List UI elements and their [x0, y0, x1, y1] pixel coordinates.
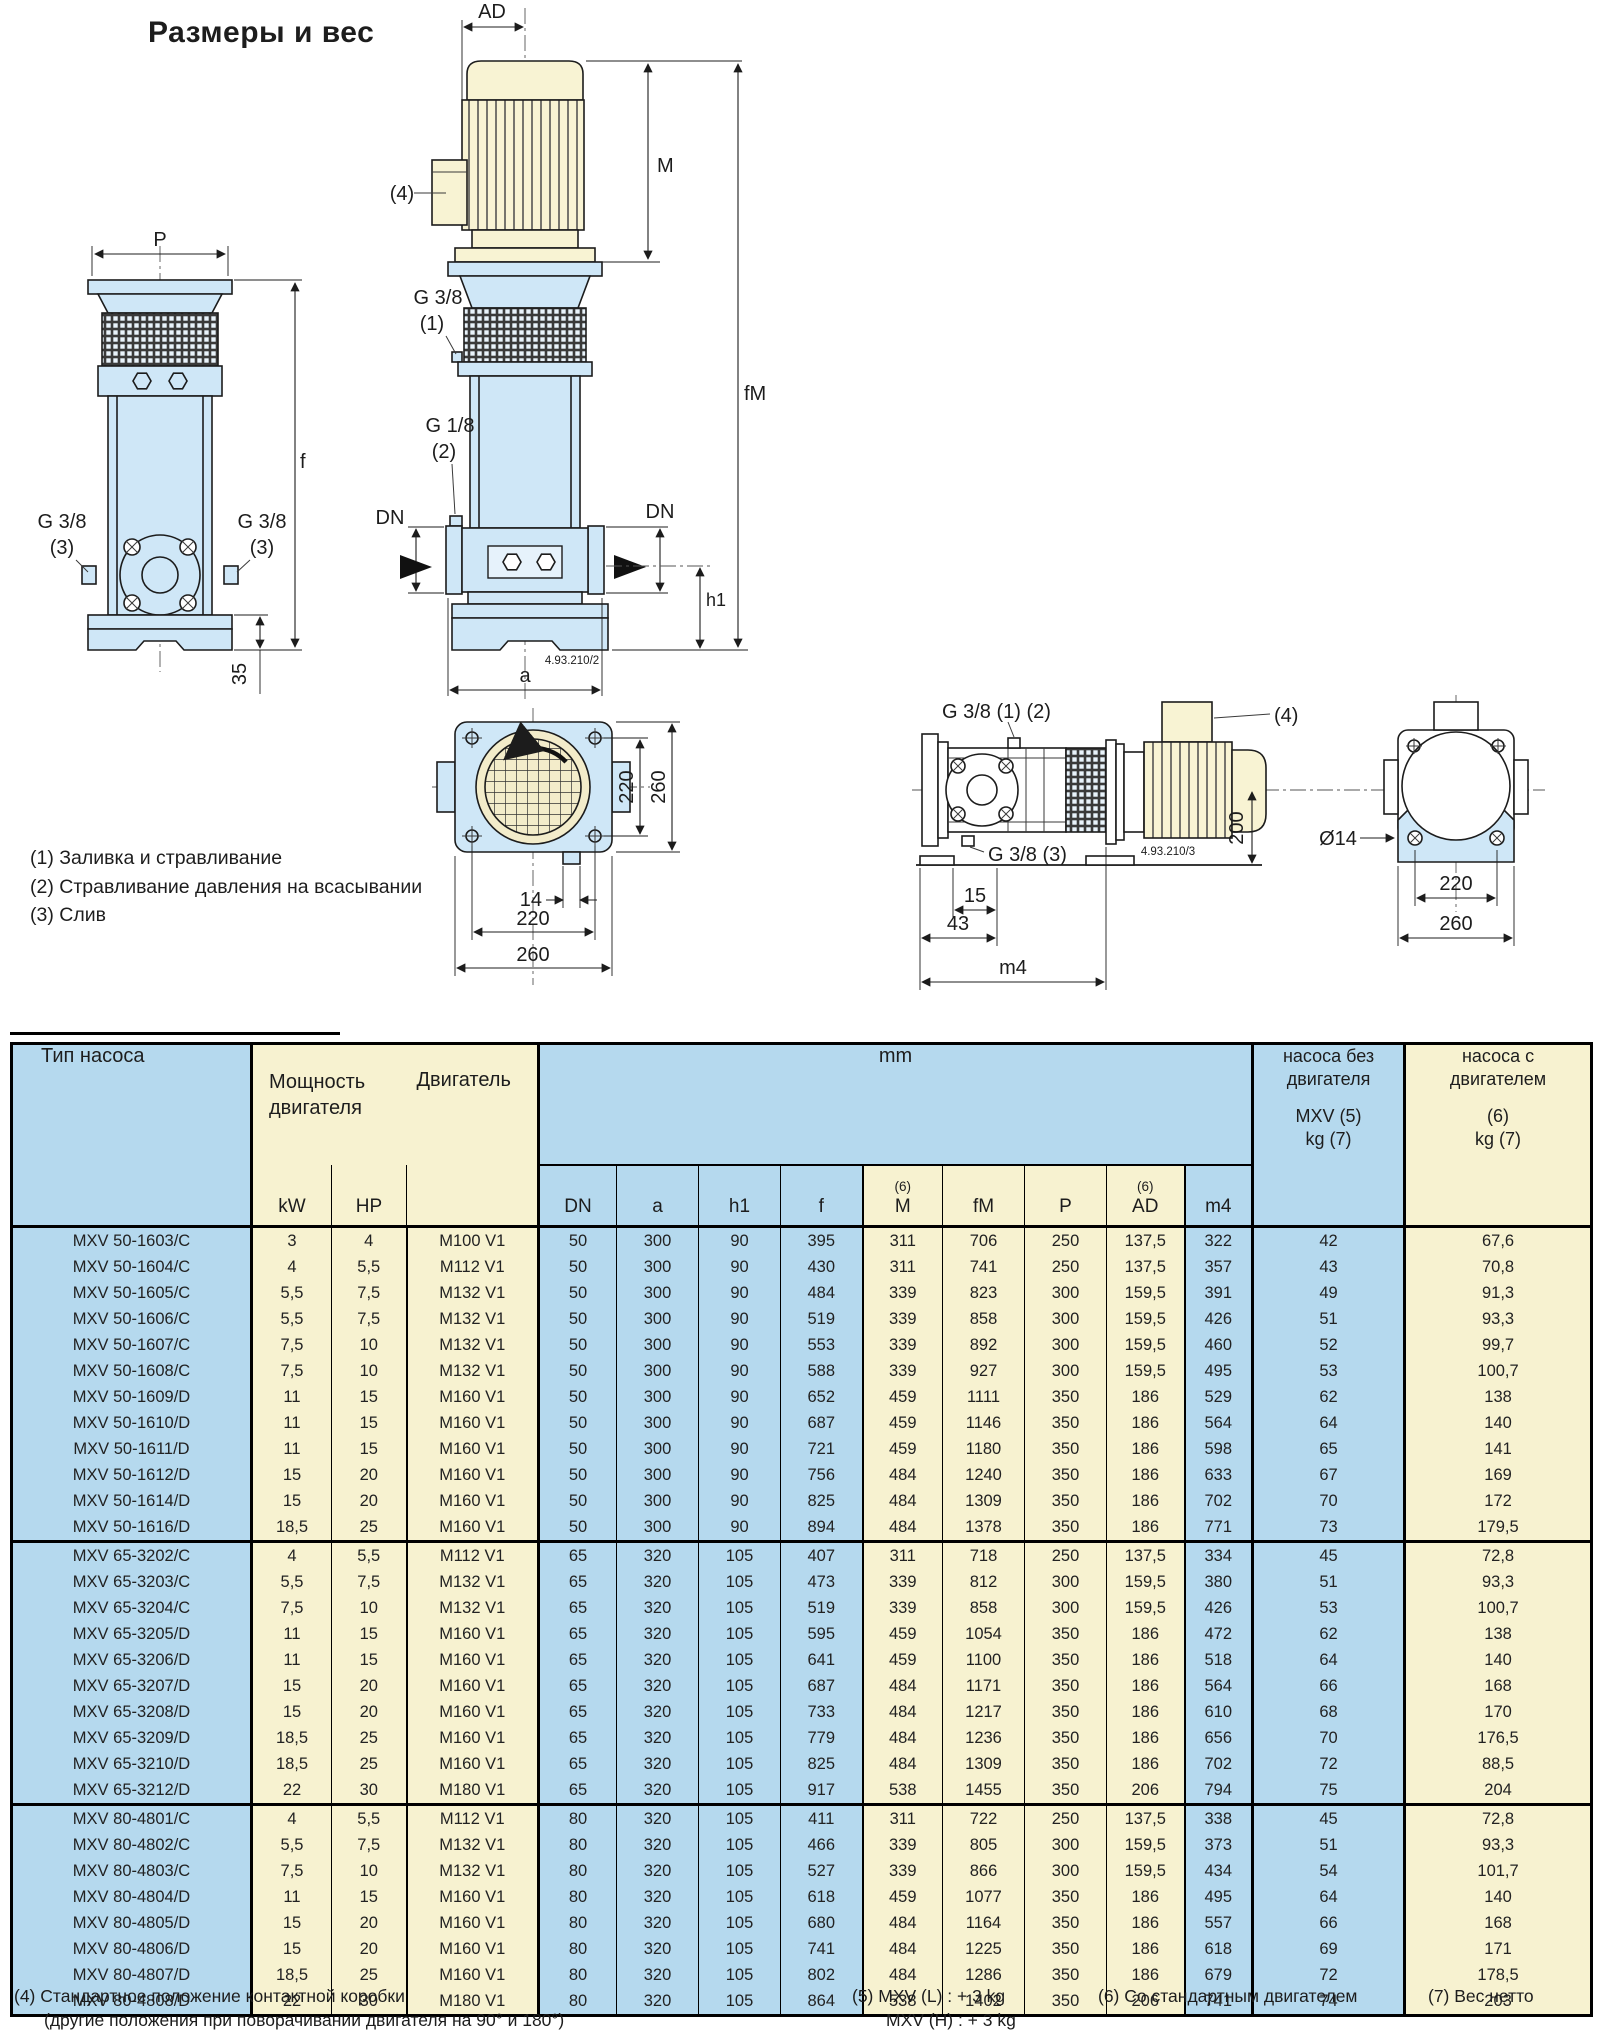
cell-a: 300	[617, 1306, 699, 1332]
cell-fm: 1100	[943, 1647, 1025, 1673]
cell-kg-pump: 72	[1253, 1751, 1405, 1777]
cell-fm: 927	[943, 1358, 1025, 1384]
cell-kw: 11	[252, 1621, 332, 1647]
cell-dn: 50	[539, 1280, 617, 1306]
cell-ad: 159,5	[1107, 1280, 1185, 1306]
cell-f: 756	[781, 1462, 863, 1488]
cell-a: 320	[617, 1936, 699, 1962]
cell-kg-total: 178,5	[1405, 1962, 1592, 1988]
cell-ad: 159,5	[1107, 1858, 1185, 1884]
legend-note-2: (2) Стравливание давления на всасывании	[30, 873, 422, 902]
cell-motor: M160 V1	[407, 1673, 539, 1699]
cell-kg-total: 100,7	[1405, 1358, 1592, 1384]
legend-note-3: (3) Слив	[30, 901, 422, 930]
cell-m: 484	[863, 1699, 943, 1725]
dimensions-table: Тип насоса Мощность двигателя Двигатель …	[10, 1042, 1593, 2017]
cell-f: 411	[781, 1805, 863, 1833]
cell-ad: 186	[1107, 1488, 1185, 1514]
cell-h1: 105	[699, 1751, 781, 1777]
cell-motor: M132 V1	[407, 1332, 539, 1358]
cell-motor: M132 V1	[407, 1358, 539, 1384]
cell-kw: 5,5	[252, 1832, 332, 1858]
table-row: MXV 65-3202/C45,5M112 V16532010540731171…	[12, 1542, 1592, 1570]
cell-m4: 702	[1185, 1488, 1253, 1514]
cell-hp: 15	[332, 1384, 407, 1410]
cell-kg-pump: 64	[1253, 1884, 1405, 1910]
dim-dia14: Ø14	[1319, 828, 1357, 850]
cell-m: 339	[863, 1358, 943, 1384]
cell-kg-pump: 73	[1253, 1514, 1405, 1542]
cell-dn: 65	[539, 1673, 617, 1699]
fan-grill	[485, 739, 581, 835]
footnote-6: (6) Со стандартным двигателем	[1098, 1986, 1357, 2007]
cell-m: 311	[863, 1254, 943, 1280]
cell-a: 320	[617, 1884, 699, 1910]
cell-pump-type: MXV 65-3203/C	[12, 1569, 252, 1595]
cell-kg-pump: 45	[1253, 1805, 1405, 1833]
cell-kw: 11	[252, 1436, 332, 1462]
wo-line2: двигателя	[1287, 1069, 1371, 1089]
cell-p: 250	[1025, 1805, 1107, 1833]
port-note-3-left: (3)	[50, 537, 74, 559]
cell-f: 721	[781, 1436, 863, 1462]
cell-kg-pump: 49	[1253, 1280, 1405, 1306]
cell-fm: 805	[943, 1832, 1025, 1858]
cell-ad: 186	[1107, 1436, 1185, 1462]
cell-m4: 338	[1185, 1805, 1253, 1833]
cell-kg-pump: 72	[1253, 1962, 1405, 1988]
dim-220-vert: 220	[616, 770, 638, 803]
cell-hp: 10	[332, 1332, 407, 1358]
dim-P: P	[153, 229, 166, 251]
cell-dn: 80	[539, 1962, 617, 1988]
cell-motor: M132 V1	[407, 1280, 539, 1306]
cell-m4: 334	[1185, 1542, 1253, 1570]
cell-h1: 90	[699, 1254, 781, 1280]
cell-p: 300	[1025, 1306, 1107, 1332]
col-header-weight-without-motor: насоса без двигателя MXV (5) kg (7)	[1253, 1044, 1405, 1227]
cell-dn: 50	[539, 1254, 617, 1280]
cell-motor: M132 V1	[407, 1569, 539, 1595]
cell-m4: 794	[1185, 1777, 1253, 1805]
dim-260-end: 260	[1439, 913, 1472, 935]
col-header-P: P	[1025, 1165, 1107, 1227]
cell-h1: 105	[699, 1621, 781, 1647]
col-header-M: (6)M	[863, 1165, 943, 1227]
cell-p: 350	[1025, 1988, 1107, 2016]
dim-DN-right: DN	[646, 501, 675, 523]
cell-dn: 65	[539, 1569, 617, 1595]
dim-260-bottom: 260	[516, 944, 549, 966]
cell-kg-total: 138	[1405, 1621, 1592, 1647]
cell-h1: 105	[699, 1805, 781, 1833]
port-note-3-right: (3)	[250, 537, 274, 559]
col-header-hp: HP	[332, 1165, 407, 1227]
dim-260-vert: 260	[648, 770, 670, 803]
table-row: MXV 65-3206/D1115M160 V16532010564145911…	[12, 1647, 1592, 1673]
dim-h1: h1	[706, 590, 726, 610]
col-header-f: f	[781, 1165, 863, 1227]
table-row: MXV 65-3205/D1115M160 V16532010559545910…	[12, 1621, 1592, 1647]
cell-a: 300	[617, 1280, 699, 1306]
cell-f: 687	[781, 1410, 863, 1436]
cell-kg-total: 72,8	[1405, 1805, 1592, 1833]
cell-pump-type: MXV 80-4804/D	[12, 1884, 252, 1910]
cell-pump-type: MXV 50-1608/C	[12, 1358, 252, 1384]
cell-m4: 656	[1185, 1725, 1253, 1751]
cell-dn: 80	[539, 1805, 617, 1833]
dim-m4: m4	[999, 957, 1027, 979]
cell-ad: 186	[1107, 1384, 1185, 1410]
dim-AD: AD	[478, 1, 506, 23]
cell-hp: 5,5	[332, 1805, 407, 1833]
label-g38-1-2: G 3/8 (1) (2)	[942, 701, 1051, 723]
col-header-fM: fM	[943, 1165, 1025, 1227]
cell-a: 300	[617, 1514, 699, 1542]
footnote-4-line2: (другие положения при поворачивании двиг…	[44, 2010, 564, 2031]
cell-fm: 1111	[943, 1384, 1025, 1410]
cell-m: 484	[863, 1488, 943, 1514]
cell-hp: 30	[332, 1777, 407, 1805]
cell-f: 680	[781, 1910, 863, 1936]
cell-m: 339	[863, 1832, 943, 1858]
col-header-DN: DN	[539, 1165, 617, 1227]
wm-line2: двигателем	[1450, 1069, 1546, 1089]
cell-p: 300	[1025, 1595, 1107, 1621]
cell-kw: 22	[252, 1777, 332, 1805]
cell-fm: 722	[943, 1805, 1025, 1833]
cell-fm: 741	[943, 1254, 1025, 1280]
table-row: MXV 80-4806/D1520M160 V18032010574148412…	[12, 1936, 1592, 1962]
table-row: MXV 50-1607/C7,510M132 V1503009055333989…	[12, 1332, 1592, 1358]
label-g38-3: G 3/8 (3)	[988, 844, 1067, 866]
cell-h1: 90	[699, 1462, 781, 1488]
cell-p: 350	[1025, 1936, 1107, 1962]
section-divider	[10, 1032, 340, 1035]
cell-a: 320	[617, 1647, 699, 1673]
cell-m: 484	[863, 1725, 943, 1751]
col-header-kw: kW	[252, 1165, 332, 1227]
drawing-legend: (1) Заливка и стравливание (2) Стравлива…	[30, 844, 422, 930]
cell-kg-pump: 70	[1253, 1488, 1405, 1514]
cell-ad: 186	[1107, 1936, 1185, 1962]
cell-m4: 518	[1185, 1647, 1253, 1673]
cell-kg-total: 67,6	[1405, 1227, 1592, 1255]
table-row: MXV 80-4803/C7,510M132 V1803201055273398…	[12, 1858, 1592, 1884]
terminal-box-side	[1162, 702, 1212, 742]
dim-220-bottom: 220	[516, 908, 549, 930]
cell-hp: 7,5	[332, 1569, 407, 1595]
cell-fm: 1077	[943, 1884, 1025, 1910]
cell-f: 553	[781, 1332, 863, 1358]
cell-kw: 15	[252, 1673, 332, 1699]
cell-kg-total: 170	[1405, 1699, 1592, 1725]
dim-200: 200	[1226, 811, 1248, 844]
cell-kw: 4	[252, 1254, 332, 1280]
cell-dn: 80	[539, 1936, 617, 1962]
port-label-g38-left: G 3/8	[38, 511, 87, 533]
table-row: MXV 80-4807/D18,525M160 V180320105802484…	[12, 1962, 1592, 1988]
cell-m4: 702	[1185, 1751, 1253, 1777]
cell-hp: 7,5	[332, 1280, 407, 1306]
table-row: MXV 50-1608/C7,510M132 V1503009058833992…	[12, 1358, 1592, 1384]
cell-kg-pump: 54	[1253, 1858, 1405, 1884]
cell-motor: M132 V1	[407, 1595, 539, 1621]
table-row: MXV 65-3203/C5,57,5M132 V165320105473339…	[12, 1569, 1592, 1595]
cell-h1: 90	[699, 1488, 781, 1514]
cell-fm: 1171	[943, 1673, 1025, 1699]
cell-hp: 20	[332, 1910, 407, 1936]
wm-line3: (6)	[1406, 1105, 1590, 1128]
dim-DN-left: DN	[376, 507, 405, 529]
cell-hp: 25	[332, 1962, 407, 1988]
cell-p: 350	[1025, 1647, 1107, 1673]
cell-f: 407	[781, 1542, 863, 1570]
cell-pump-type: MXV 50-1603/C	[12, 1227, 252, 1255]
cell-dn: 50	[539, 1462, 617, 1488]
cell-dn: 80	[539, 1910, 617, 1936]
cell-m: 484	[863, 1462, 943, 1488]
cell-a: 300	[617, 1436, 699, 1462]
cell-motor: M132 V1	[407, 1858, 539, 1884]
cell-ad: 186	[1107, 1751, 1185, 1777]
table-row: MXV 50-1605/C5,57,5M132 V150300904843398…	[12, 1280, 1592, 1306]
cell-kw: 18,5	[252, 1725, 332, 1751]
cell-p: 300	[1025, 1832, 1107, 1858]
cell-kw: 3	[252, 1227, 332, 1255]
cell-hp: 15	[332, 1884, 407, 1910]
table-row: MXV 50-1612/D1520M160 V15030090756484124…	[12, 1462, 1592, 1488]
cell-h1: 105	[699, 1725, 781, 1751]
cell-kg-pump: 43	[1253, 1254, 1405, 1280]
cell-fm: 812	[943, 1569, 1025, 1595]
cell-motor: M160 V1	[407, 1936, 539, 1962]
cell-fm: 706	[943, 1227, 1025, 1255]
cell-ad: 186	[1107, 1514, 1185, 1542]
cell-p: 300	[1025, 1332, 1107, 1358]
plug-note-2: (2)	[432, 441, 456, 463]
cell-f: 519	[781, 1306, 863, 1332]
cell-kw: 5,5	[252, 1569, 332, 1595]
cell-kg-total: 138	[1405, 1384, 1592, 1410]
cell-kg-pump: 75	[1253, 1777, 1405, 1805]
cell-ad: 186	[1107, 1699, 1185, 1725]
cell-m4: 460	[1185, 1332, 1253, 1358]
cell-motor: M160 V1	[407, 1621, 539, 1647]
label-M: M	[895, 1196, 911, 1217]
wo-line3: MXV (5)	[1254, 1105, 1403, 1128]
cell-kw: 18,5	[252, 1962, 332, 1988]
cell-dn: 65	[539, 1777, 617, 1805]
cell-kg-pump: 51	[1253, 1832, 1405, 1858]
cell-ad: 186	[1107, 1884, 1185, 1910]
cell-pump-type: MXV 65-3206/D	[12, 1647, 252, 1673]
cell-dn: 80	[539, 1858, 617, 1884]
cell-h1: 90	[699, 1358, 781, 1384]
cell-a: 320	[617, 1805, 699, 1833]
cell-kg-pump: 45	[1253, 1542, 1405, 1570]
cell-dn: 65	[539, 1647, 617, 1673]
table-row: MXV 65-3212/D2230M180 V16532010591753814…	[12, 1777, 1592, 1805]
cell-ad: 159,5	[1107, 1306, 1185, 1332]
cell-p: 350	[1025, 1410, 1107, 1436]
cell-p: 350	[1025, 1725, 1107, 1751]
cell-f: 864	[781, 1988, 863, 2016]
cell-p: 300	[1025, 1358, 1107, 1384]
cell-m: 484	[863, 1514, 943, 1542]
cell-dn: 50	[539, 1227, 617, 1255]
cell-kg-pump: 66	[1253, 1673, 1405, 1699]
cell-h1: 105	[699, 1595, 781, 1621]
cell-fm: 858	[943, 1595, 1025, 1621]
cell-a: 320	[617, 1777, 699, 1805]
cell-m4: 618	[1185, 1936, 1253, 1962]
cell-kg-total: 101,7	[1405, 1858, 1592, 1884]
cell-p: 350	[1025, 1488, 1107, 1514]
cell-kw: 18,5	[252, 1514, 332, 1542]
cell-kw: 7,5	[252, 1858, 332, 1884]
cell-m: 484	[863, 1936, 943, 1962]
cell-kw: 15	[252, 1910, 332, 1936]
cell-dn: 50	[539, 1306, 617, 1332]
cell-fm: 1146	[943, 1410, 1025, 1436]
cell-motor: M160 V1	[407, 1962, 539, 1988]
cell-kg-total: 141	[1405, 1436, 1592, 1462]
wo-line1: насоса без	[1283, 1046, 1374, 1066]
cell-hp: 20	[332, 1673, 407, 1699]
cell-kg-pump: 69	[1253, 1936, 1405, 1962]
cell-h1: 90	[699, 1280, 781, 1306]
cell-f: 917	[781, 1777, 863, 1805]
cell-kg-pump: 52	[1253, 1332, 1405, 1358]
cell-motor: M160 V1	[407, 1751, 539, 1777]
cell-dn: 65	[539, 1725, 617, 1751]
cell-h1: 105	[699, 1777, 781, 1805]
cell-ad: 186	[1107, 1410, 1185, 1436]
cell-m: 311	[863, 1805, 943, 1833]
cell-ad: 186	[1107, 1621, 1185, 1647]
cell-motor: M160 V1	[407, 1647, 539, 1673]
col-header-power: Мощность двигателя	[252, 1044, 407, 1166]
cell-m: 459	[863, 1621, 943, 1647]
cell-ad: 186	[1107, 1962, 1185, 1988]
cell-a: 320	[617, 1910, 699, 1936]
table-row: MXV 50-1614/D1520M160 V15030090825484130…	[12, 1488, 1592, 1514]
cell-a: 300	[617, 1488, 699, 1514]
cell-kw: 5,5	[252, 1280, 332, 1306]
cell-h1: 90	[699, 1332, 781, 1358]
table-row: MXV 50-1609/D1115M160 V15030090652459111…	[12, 1384, 1592, 1410]
cell-kg-total: 204	[1405, 1777, 1592, 1805]
cell-f: 519	[781, 1595, 863, 1621]
cell-h1: 90	[699, 1306, 781, 1332]
cell-kg-pump: 70	[1253, 1725, 1405, 1751]
cell-hp: 20	[332, 1488, 407, 1514]
cell-kw: 7,5	[252, 1595, 332, 1621]
cell-fm: 1309	[943, 1751, 1025, 1777]
cell-fm: 1240	[943, 1462, 1025, 1488]
cell-m4: 564	[1185, 1410, 1253, 1436]
cell-hp: 10	[332, 1358, 407, 1384]
cell-m: 311	[863, 1227, 943, 1255]
cell-kg-total: 140	[1405, 1410, 1592, 1436]
cell-a: 320	[617, 1542, 699, 1570]
cell-ad: 186	[1107, 1462, 1185, 1488]
table-row: MXV 50-1606/C5,57,5M132 V150300905193398…	[12, 1306, 1592, 1332]
pump-top-view: 220 260 14 220 260	[432, 708, 680, 985]
cell-f: 641	[781, 1647, 863, 1673]
cell-dn: 80	[539, 1832, 617, 1858]
cell-kg-total: 72,8	[1405, 1542, 1592, 1570]
cell-m4: 434	[1185, 1858, 1253, 1884]
cell-kg-pump: 51	[1253, 1306, 1405, 1332]
cell-pump-type: MXV 50-1609/D	[12, 1384, 252, 1410]
cell-dn: 65	[539, 1595, 617, 1621]
cell-kw: 7,5	[252, 1358, 332, 1384]
cell-f: 595	[781, 1621, 863, 1647]
cell-dn: 50	[539, 1488, 617, 1514]
cell-kg-total: 93,3	[1405, 1306, 1592, 1332]
cell-hp: 10	[332, 1595, 407, 1621]
cell-kg-total: 171	[1405, 1936, 1592, 1962]
cell-h1: 105	[699, 1962, 781, 1988]
cell-hp: 15	[332, 1647, 407, 1673]
cell-motor: M160 V1	[407, 1514, 539, 1542]
cell-a: 320	[617, 1725, 699, 1751]
cell-pump-type: MXV 65-3209/D	[12, 1725, 252, 1751]
cell-f: 395	[781, 1227, 863, 1255]
cell-h1: 105	[699, 1832, 781, 1858]
table-row: MXV 50-1604/C45,5M112 V15030090430311741…	[12, 1254, 1592, 1280]
cell-f: 527	[781, 1858, 863, 1884]
cell-f: 825	[781, 1488, 863, 1514]
cell-fm: 1217	[943, 1699, 1025, 1725]
cell-kg-total: 140	[1405, 1647, 1592, 1673]
cell-m: 484	[863, 1673, 943, 1699]
cell-m4: 564	[1185, 1673, 1253, 1699]
cell-a: 320	[617, 1621, 699, 1647]
cell-pump-type: MXV 50-1604/C	[12, 1254, 252, 1280]
cell-h1: 105	[699, 1699, 781, 1725]
cell-p: 300	[1025, 1280, 1107, 1306]
cell-p: 250	[1025, 1542, 1107, 1570]
cell-motor: M160 V1	[407, 1436, 539, 1462]
cell-p: 250	[1025, 1254, 1107, 1280]
cell-ad: 186	[1107, 1673, 1185, 1699]
cell-m4: 426	[1185, 1306, 1253, 1332]
cell-ad: 159,5	[1107, 1332, 1185, 1358]
cell-dn: 50	[539, 1436, 617, 1462]
cell-dn: 65	[539, 1751, 617, 1777]
cell-kg-pump: 62	[1253, 1384, 1405, 1410]
cell-kw: 15	[252, 1488, 332, 1514]
cell-ad: 159,5	[1107, 1569, 1185, 1595]
cell-kg-total: 168	[1405, 1910, 1592, 1936]
cell-m: 484	[863, 1910, 943, 1936]
cell-pump-type: MXV 50-1616/D	[12, 1514, 252, 1542]
cell-m: 339	[863, 1280, 943, 1306]
cell-dn: 65	[539, 1542, 617, 1570]
table-row: MXV 50-1611/D1115M160 V15030090721459118…	[12, 1436, 1592, 1462]
cell-pump-type: MXV 50-1607/C	[12, 1332, 252, 1358]
cell-pump-type: MXV 80-4802/C	[12, 1832, 252, 1858]
cell-motor: M100 V1	[407, 1227, 539, 1255]
cell-kw: 11	[252, 1410, 332, 1436]
cell-p: 350	[1025, 1514, 1107, 1542]
cell-a: 320	[617, 1988, 699, 2016]
cell-kg-total: 169	[1405, 1462, 1592, 1488]
cell-dn: 65	[539, 1621, 617, 1647]
